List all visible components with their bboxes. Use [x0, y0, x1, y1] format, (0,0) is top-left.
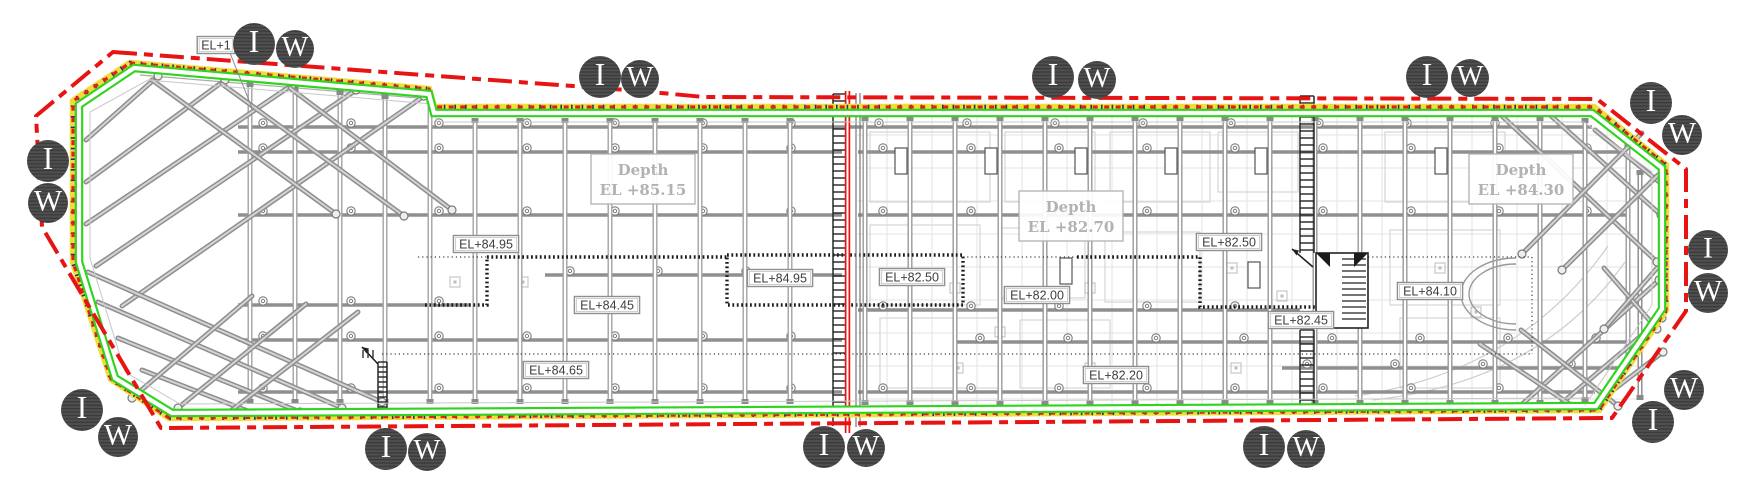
- site-plan-drawing: EL+1EL+84.95EL+84.45EL+84.65EL+84.95EL+8…: [0, 0, 1760, 500]
- marker-letter: W: [414, 435, 441, 466]
- instrument-marker-i: I: [365, 428, 407, 470]
- marker-letter: I: [1646, 83, 1657, 118]
- instrument-marker-w: W: [276, 30, 314, 68]
- elevation-text: EL+84.45: [580, 299, 634, 313]
- marker-letter: W: [1084, 63, 1111, 94]
- elevation-text: EL+82.00: [1010, 289, 1064, 303]
- elevation-text: EL+84.95: [459, 238, 513, 252]
- elevation-label: EL+1: [197, 37, 235, 54]
- instrument-marker-w: W: [1688, 273, 1728, 313]
- elevation-label: EL+82.50: [1196, 234, 1261, 251]
- marker-letter: I: [1048, 57, 1059, 92]
- depth-zone-label: DepthEL +85.15: [591, 154, 695, 204]
- marker-letter: W: [1694, 275, 1723, 308]
- marker-letter: W: [34, 185, 63, 218]
- depth-zone-label: DepthEL +82.70: [1019, 191, 1123, 241]
- depth-title: Depth: [618, 161, 669, 179]
- instrument-marker-i: I: [803, 426, 845, 468]
- instrument-marker-i: I: [1032, 56, 1074, 98]
- elevation-label: EL+84.65: [523, 362, 588, 379]
- instrument-marker-w: W: [1078, 61, 1116, 99]
- marker-letter: W: [853, 431, 880, 462]
- instrument-marker-w: W: [1451, 59, 1489, 97]
- instrument-marker-i: I: [1406, 56, 1448, 98]
- marker-letter: I: [43, 141, 54, 176]
- elevation-label: EL+82.45: [1268, 312, 1333, 329]
- depth-elevation: EL +85.15: [600, 181, 687, 199]
- elevation-text: EL+1: [201, 39, 231, 53]
- elevation-label: EL+84.45: [574, 297, 639, 314]
- marker-letter: W: [1670, 372, 1699, 405]
- instrument-marker-w: W: [98, 417, 138, 457]
- marker-letter: W: [104, 419, 133, 452]
- marker-letter: I: [1422, 57, 1433, 92]
- marker-letter: W: [1293, 432, 1320, 463]
- marker-letter: I: [1648, 402, 1659, 437]
- elevation-label: EL+82.00: [1004, 287, 1069, 304]
- instrument-marker-w: W: [28, 183, 68, 223]
- marker-letter: W: [1668, 117, 1697, 150]
- instrument-marker-i: I: [1630, 82, 1672, 124]
- elevation-label: EL+82.50: [879, 269, 944, 286]
- instrument-marker-w: W: [847, 429, 885, 467]
- marker-letter: I: [1259, 427, 1270, 462]
- depth-elevation: EL +82.70: [1028, 218, 1115, 236]
- marker-letter: I: [595, 57, 606, 92]
- elevation-text: EL+82.50: [885, 271, 939, 285]
- site-plan-canvas: EL+1EL+84.95EL+84.45EL+84.65EL+84.95EL+8…: [0, 0, 1760, 500]
- instrument-marker-w: W: [621, 60, 659, 98]
- instrument-marker-i: I: [61, 389, 103, 431]
- elevation-text: EL+82.45: [1274, 314, 1328, 328]
- marker-letter: W: [627, 62, 654, 93]
- elevation-text: EL+84.65: [529, 364, 583, 378]
- elevation-text: EL+84.95: [753, 272, 807, 286]
- marker-letter: I: [249, 24, 260, 59]
- instrument-marker-i: I: [1243, 426, 1285, 468]
- instrument-marker-i: I: [233, 23, 275, 65]
- marker-letter: W: [1457, 61, 1484, 92]
- instrument-marker-w: W: [1662, 115, 1702, 155]
- elevation-label: EL+84.10: [1397, 283, 1462, 300]
- elevation-text: EL+82.50: [1202, 236, 1256, 250]
- depth-zone-label: DepthEL +84.30: [1469, 154, 1573, 204]
- elevation-label: EL+84.95: [747, 270, 812, 287]
- instrument-marker-i: I: [579, 56, 621, 98]
- instrument-marker-w: W: [408, 433, 446, 471]
- depth-title: Depth: [1496, 161, 1547, 179]
- construction-joint: [848, 91, 861, 433]
- instrument-marker-i: I: [27, 140, 69, 182]
- elevation-label: EL+84.95: [453, 236, 518, 253]
- instrument-marker-w: W: [1664, 370, 1704, 410]
- instrument-marker-w: W: [1287, 430, 1325, 468]
- marker-letter: I: [77, 390, 88, 425]
- instrument-marker-i: I: [1632, 401, 1674, 443]
- elevation-label: EL+82.20: [1083, 367, 1148, 384]
- elevation-text: EL+84.10: [1403, 285, 1457, 299]
- elevation-text: EL+82.20: [1089, 369, 1143, 383]
- marker-letter: I: [381, 429, 392, 464]
- marker-letter: I: [1703, 232, 1713, 265]
- depth-title: Depth: [1046, 198, 1097, 216]
- marker-letter: W: [282, 32, 309, 63]
- marker-letter: I: [819, 427, 830, 462]
- depth-elevation: EL +84.30: [1478, 181, 1565, 199]
- instrument-marker-i: I: [1688, 230, 1728, 270]
